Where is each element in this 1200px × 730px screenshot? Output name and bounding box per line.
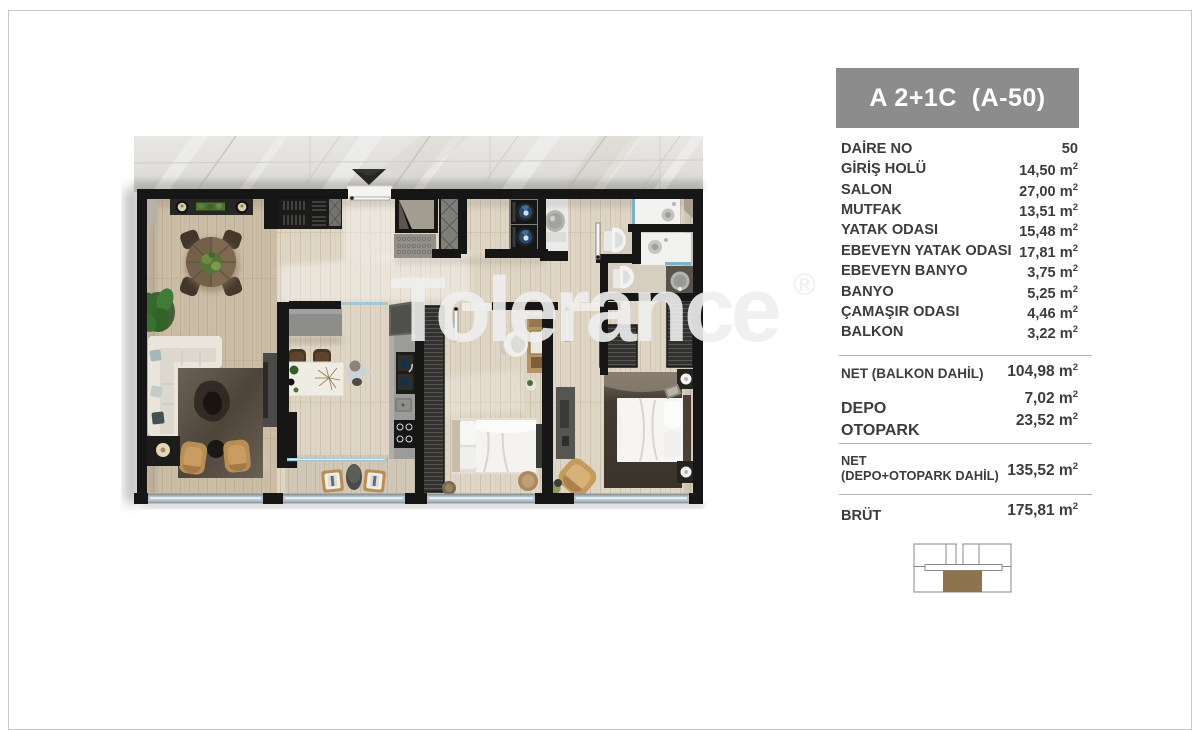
svg-text:Tolerance: Tolerance [390,259,780,361]
svg-text:®: ® [793,267,816,302]
